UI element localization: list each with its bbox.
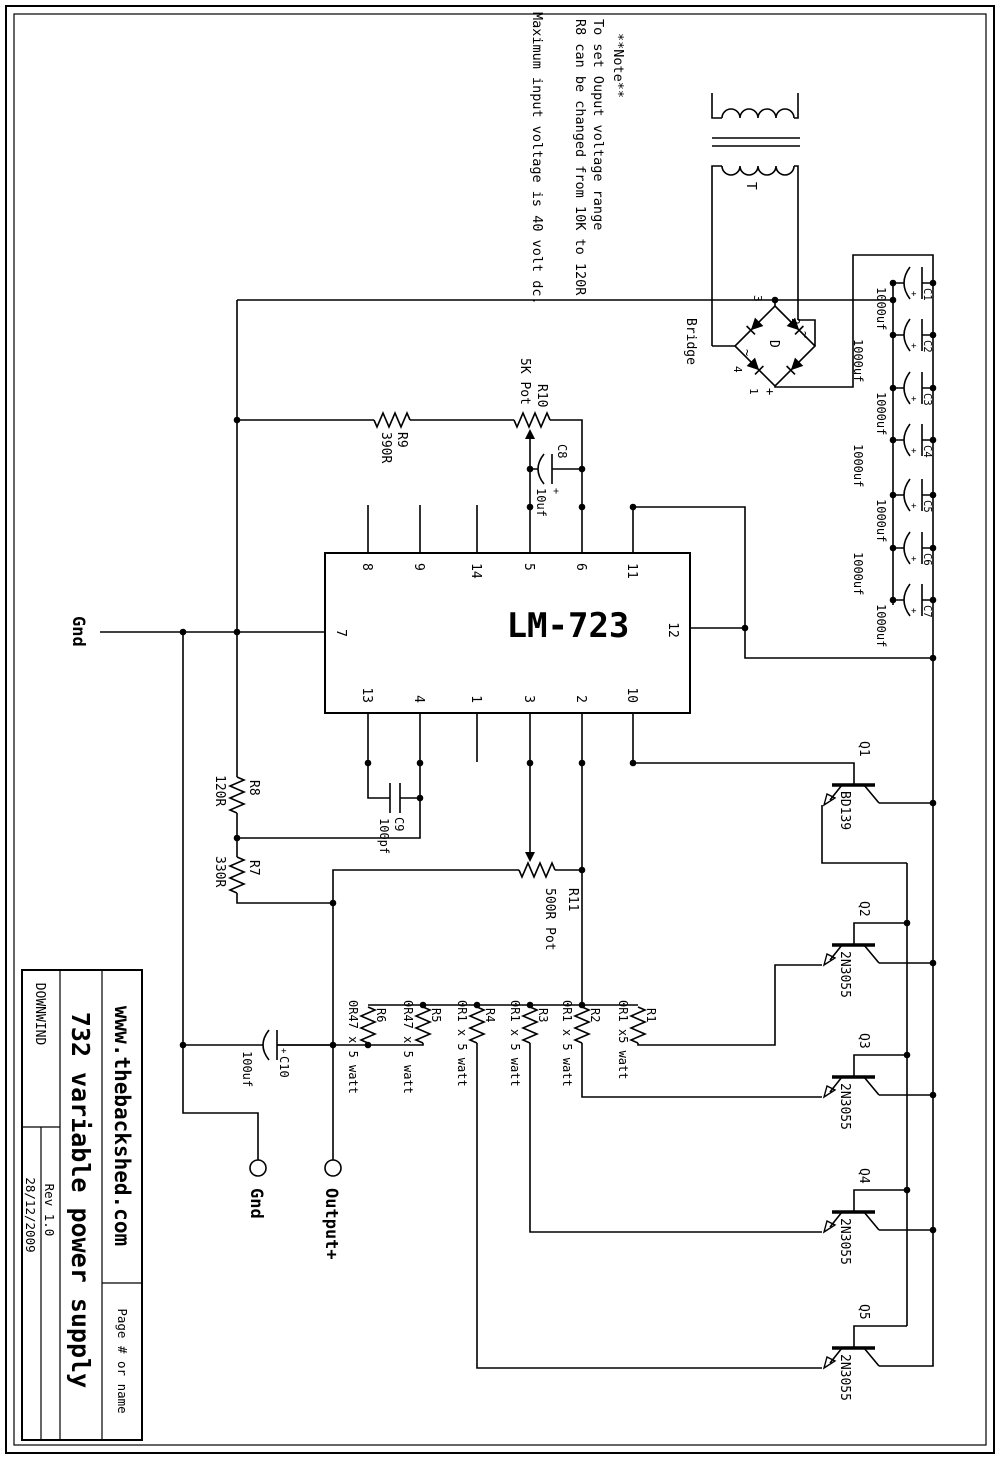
resistor-label: R10 <box>534 384 549 407</box>
transistor-label: Q3 <box>856 1033 871 1049</box>
ic-pin-12: 12 <box>665 622 680 638</box>
title-rev: Rev 1.0 <box>42 1184 57 1237</box>
ic-pin-5: 5 <box>521 563 536 571</box>
ic-pin-1: 1 <box>468 695 483 703</box>
ic-lm723: LM-723 11 6 5 14 9 8 10 2 3 1 4 13 12 7 <box>325 553 690 713</box>
transistor-label: Q1 <box>856 741 871 757</box>
transistor-value: 2N3055 <box>837 1218 852 1265</box>
capacitor-label: C1 <box>921 288 933 301</box>
resistor-r7: R7 330R <box>212 856 261 893</box>
polarity-mark: + <box>908 291 918 297</box>
resistor-value: 120R <box>212 775 227 806</box>
capacitor-label: C2 <box>921 340 933 353</box>
bridge-label: Bridge <box>683 318 698 365</box>
polarity-mark: + <box>278 1048 288 1054</box>
resistor-value: 330R <box>212 856 227 887</box>
capacitor-value: 1000uf <box>851 339 865 382</box>
polarity-mark: + <box>908 448 918 454</box>
capacitor-c7: C7 + 1000uf <box>874 584 933 647</box>
resistor-r8: R8 120R <box>212 775 261 813</box>
bridge-ac1: ~ <box>798 331 812 338</box>
capacitor-label: C3 <box>921 393 933 406</box>
ic-pin-8: 8 <box>359 563 374 571</box>
capacitor-label: C7 <box>921 605 933 618</box>
capacitor-value: 1000uf <box>851 552 865 595</box>
bridge-ac2: ~ <box>740 349 754 356</box>
ic-label: LM-723 <box>507 606 630 646</box>
resistor-r5: R5 0R47 x 5 watt <box>401 1000 443 1094</box>
title-block: www.thebackshed.com Page # or name 732 v… <box>22 970 142 1440</box>
resistor-label: R5 <box>429 1008 443 1022</box>
capacitor-c6: C6 + 1000uf <box>851 532 933 595</box>
polarity-mark: + <box>908 396 918 402</box>
resistor-label: R3 <box>536 1008 550 1022</box>
resistor-label: R2 <box>588 1008 602 1022</box>
transistor-q4: Q4 2N3055 <box>824 1168 933 1265</box>
capacitor-value: 1000uf <box>874 287 888 330</box>
resistor-r2: R2 0R1 x 5 watt <box>560 1000 602 1087</box>
transistor-label: Q2 <box>856 901 871 917</box>
note-title: **Note** <box>610 33 626 98</box>
junction-dots <box>180 280 937 1234</box>
transistor-value: 2N3055 <box>837 1083 852 1130</box>
capacitor-value: 1000uf <box>851 444 865 487</box>
transistor-q3: Q3 2N3055 <box>824 1033 933 1130</box>
bridge-center-label: D <box>766 340 781 348</box>
capacitor-label: C10 <box>277 1056 291 1078</box>
transistor-q5: Q5 2N3055 <box>824 1304 879 1401</box>
transistor-q2: Q2 2N3055 <box>824 901 933 998</box>
resistor-value: 0R1 x5 watt <box>616 1000 630 1079</box>
capacitor-label: C5 <box>921 500 933 513</box>
resistor-value: 390R <box>378 432 393 463</box>
capacitor-label: C4 <box>921 445 933 458</box>
ic-pin-14: 14 <box>468 563 483 579</box>
capacitor-c4: C4 + 1000uf <box>851 424 933 487</box>
polarity-mark: + <box>908 343 918 349</box>
title-site: www.thebackshed.com <box>110 1006 134 1246</box>
capacitor-value: 10uf <box>534 488 548 517</box>
resistor-r4: R4 0R1 x 5 watt <box>455 1000 497 1087</box>
transistor-value: BD139 <box>837 791 852 830</box>
resistor-value: 5K Pot <box>517 358 532 405</box>
polarity-mark: + <box>550 488 561 494</box>
resistor-r1: R1 0R1 x5 watt <box>616 1000 658 1079</box>
capacitor-value: 100pf <box>377 818 391 854</box>
ic-pin-9: 9 <box>411 563 426 571</box>
resistor-label: R1 <box>644 1008 658 1022</box>
resistor-label: R8 <box>246 780 261 796</box>
resistor-r11: R11 500R Pot <box>519 863 580 951</box>
gnd-terminal-label: Gnd <box>246 1188 266 1219</box>
ic-pin-3: 3 <box>521 695 536 703</box>
polarity-mark: + <box>908 556 918 562</box>
gnd-terminal: Gnd <box>246 1160 266 1219</box>
ic-pin-10: 10 <box>624 687 639 703</box>
bridge-plus: + <box>763 388 777 395</box>
ic-pin-6: 6 <box>573 563 588 571</box>
transistor-value: 2N3055 <box>837 1354 852 1401</box>
resistor-value: 0R1 x 5 watt <box>508 1000 522 1087</box>
resistor-value: 500R Pot <box>542 888 557 951</box>
title-project: DOWNWIND <box>32 983 47 1046</box>
capacitor-c3: C3 + 1000uf <box>874 372 933 435</box>
bridge-rectifier: D Bridge 3 2 ~ 4 ~ 1 + <box>683 295 815 395</box>
title-main: 732 variable power supply <box>66 1012 95 1388</box>
resistor-label: R4 <box>483 1008 497 1022</box>
note-line-3: R8 can be changed from 10K to 120R <box>572 19 588 296</box>
ic-pin-4: 4 <box>411 695 426 703</box>
resistor-r10: R10 5K Pot <box>514 358 550 427</box>
bridge-pin4: 4 <box>731 366 744 373</box>
capacitor-c9: C9 100pf <box>377 817 406 854</box>
note-block: **Note** To set Ouput voltage range R8 c… <box>529 12 626 305</box>
resistor-value: 0R1 x 5 watt <box>455 1000 469 1087</box>
title-page: Page # or name <box>115 1308 130 1413</box>
wires <box>100 255 933 1368</box>
capacitor-value: 100uf <box>240 1051 254 1087</box>
polarity-mark: + <box>908 503 918 509</box>
output-terminal-label: Output+ <box>321 1188 341 1260</box>
resistor-label: R9 <box>394 432 409 448</box>
resistor-label: R11 <box>565 888 580 911</box>
capacitor-value: 1000uf <box>874 499 888 542</box>
polarity-mark: + <box>908 608 918 614</box>
resistor-value: 0R47 x 5 watt <box>346 1000 360 1094</box>
schematic-sheet: **Note** To set Ouput voltage range R8 c… <box>0 0 1000 1459</box>
note-line-2: To set Ouput voltage range <box>590 19 606 230</box>
transistor-label: Q4 <box>856 1168 871 1184</box>
resistor-label: R6 <box>374 1008 388 1022</box>
ic-pin-13: 13 <box>359 687 374 703</box>
transistor-q1: Q1 BD139 <box>824 741 933 830</box>
transistor-value: 2N3055 <box>837 951 852 998</box>
capacitor-value: 1000uf <box>874 392 888 435</box>
transformer: T <box>712 93 815 346</box>
resistor-r9: R9 390R <box>374 413 410 463</box>
note-line-4: Maximum input voltage is 40 volt dc. <box>529 12 545 305</box>
bridge-pin1: 1 <box>747 388 760 395</box>
transformer-core <box>712 138 800 146</box>
resistor-value: 0R1 x 5 watt <box>560 1000 574 1087</box>
resistor-value: 0R47 x 5 watt <box>401 1000 415 1094</box>
title-date: 28/12/2009 <box>23 1177 38 1252</box>
ic-pin-11: 11 <box>624 563 639 579</box>
output-terminal: Output+ <box>321 1160 341 1260</box>
capacitor-label: C6 <box>921 553 933 566</box>
capacitor-value: 1000uf <box>874 604 888 647</box>
capacitor-label: C9 <box>392 817 406 831</box>
screenshot-root: **Note** To set Ouput voltage range R8 c… <box>0 0 1000 1459</box>
gnd-wire-label: Gnd <box>68 616 88 647</box>
bridge-pin2: 2 <box>789 318 802 325</box>
capacitor-c2: C2 + 1000uf <box>851 319 933 382</box>
schematic-canvas: **Note** To set Ouput voltage range R8 c… <box>0 0 1000 1459</box>
emitter-resistor-bank: R1 0R1 x5 watt R2 0R1 x 5 watt R3 0R1 x … <box>346 1000 658 1094</box>
capacitor-c1: C1 + 1000uf <box>874 267 933 330</box>
capacitor-label: C8 <box>555 444 569 458</box>
transistor-label: Q5 <box>856 1304 871 1320</box>
filter-capacitor-bank: C1 + 1000uf C2 + 1000uf C3 + 1000uf C4 +… <box>851 267 933 647</box>
ic-pin-7: 7 <box>333 629 348 637</box>
ic-pin-2: 2 <box>573 695 588 703</box>
resistor-r3: R3 0R1 x 5 watt <box>508 1000 550 1087</box>
resistor-label: R7 <box>246 860 261 876</box>
transformer-label: T <box>743 182 758 190</box>
capacitor-c5: C5 + 1000uf <box>874 479 933 542</box>
